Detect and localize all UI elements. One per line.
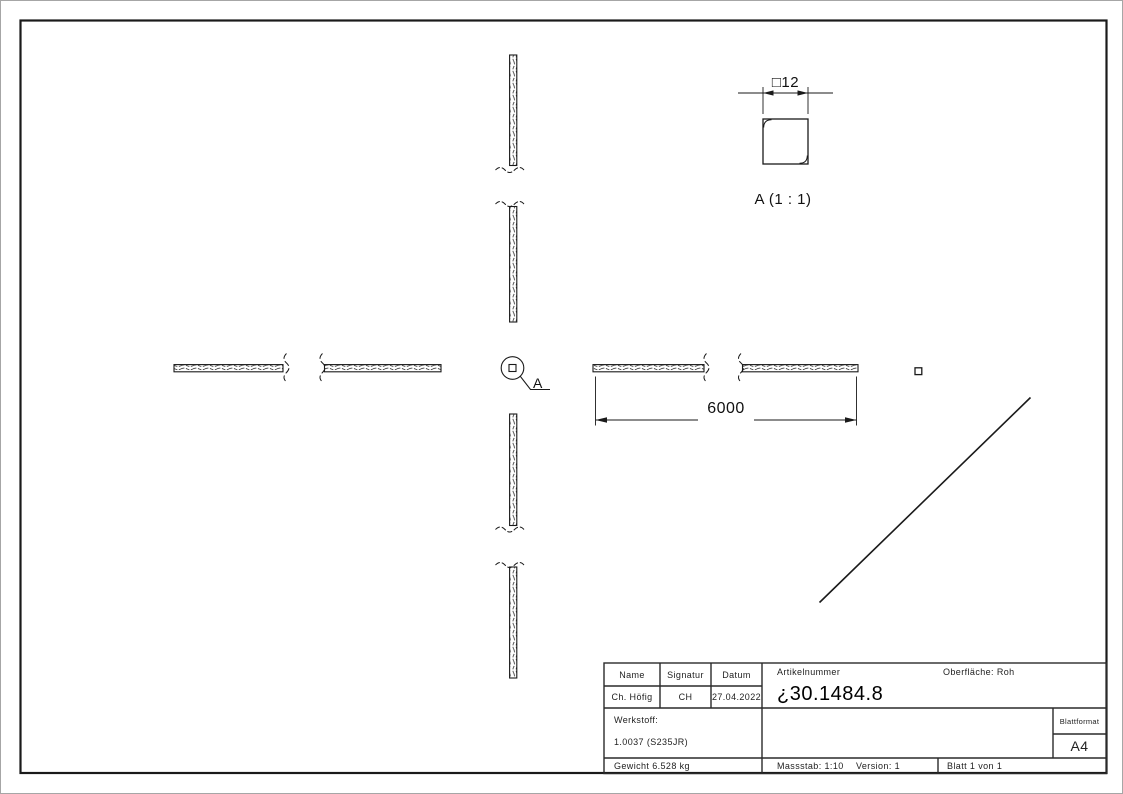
arrowhead-left [596,417,608,423]
gewicht-text: Gewicht 6.528 kg [614,761,690,771]
arrowhead-inward-right [798,90,809,95]
titleblock-value-name: Ch. Höfig [604,686,660,708]
end-view-square-right [915,368,922,375]
isometric-view-line [820,398,1031,603]
detail-view-a [738,87,833,164]
werkstoff-value: 1.0037 (S235JR) [614,737,688,747]
bar-view-bottom [510,414,517,678]
titleblock-header-signatur: Signatur [660,663,711,686]
length-dimension-text: 6000 [696,400,756,418]
blattformat-value: A4 [1053,734,1106,758]
detail-profile-dimension-text: □12 [760,73,811,91]
titleblock-value-signatur: CH [660,686,711,708]
titleblock-header-name: Name [604,663,660,686]
profile-square [763,119,808,164]
titleblock-value-datum: 27.04.2022 [711,686,762,708]
corner-radius-top-left [764,120,772,128]
version-text: Version: 1 [856,761,900,771]
detail-callout [501,357,550,390]
blattformat-label: Blattformat [1053,708,1106,734]
detail-callout-circle [501,357,524,380]
artikelnummer-value: ¿30.1484.8 [777,683,883,706]
bar-view-left [174,365,441,372]
blatt-text: Blatt 1 von 1 [947,761,1002,771]
end-view-square-center [509,365,516,372]
detail-view-label: A (1 : 1) [743,190,823,208]
oberflaeche-text: Oberfläche: Roh [943,667,1015,677]
corner-radius-bottom-right [800,156,808,164]
drawing-sheet: 6000 □12 A (1 : 1) A Name Signatur Datum… [0,0,1123,794]
artikelnummer-label: Artikelnummer [777,667,840,677]
werkstoff-label: Werkstoff: [614,715,658,725]
arrowhead-right [845,417,857,423]
arrowhead-inward-left [763,90,774,95]
sheet-frame [21,21,1107,774]
bar-view-right [593,365,858,372]
massstab-text: Massstab: 1:10 [777,761,844,771]
titleblock-header-datum: Datum [711,663,762,686]
bar-view-top [510,55,517,322]
detail-callout-letter: A [533,375,542,391]
